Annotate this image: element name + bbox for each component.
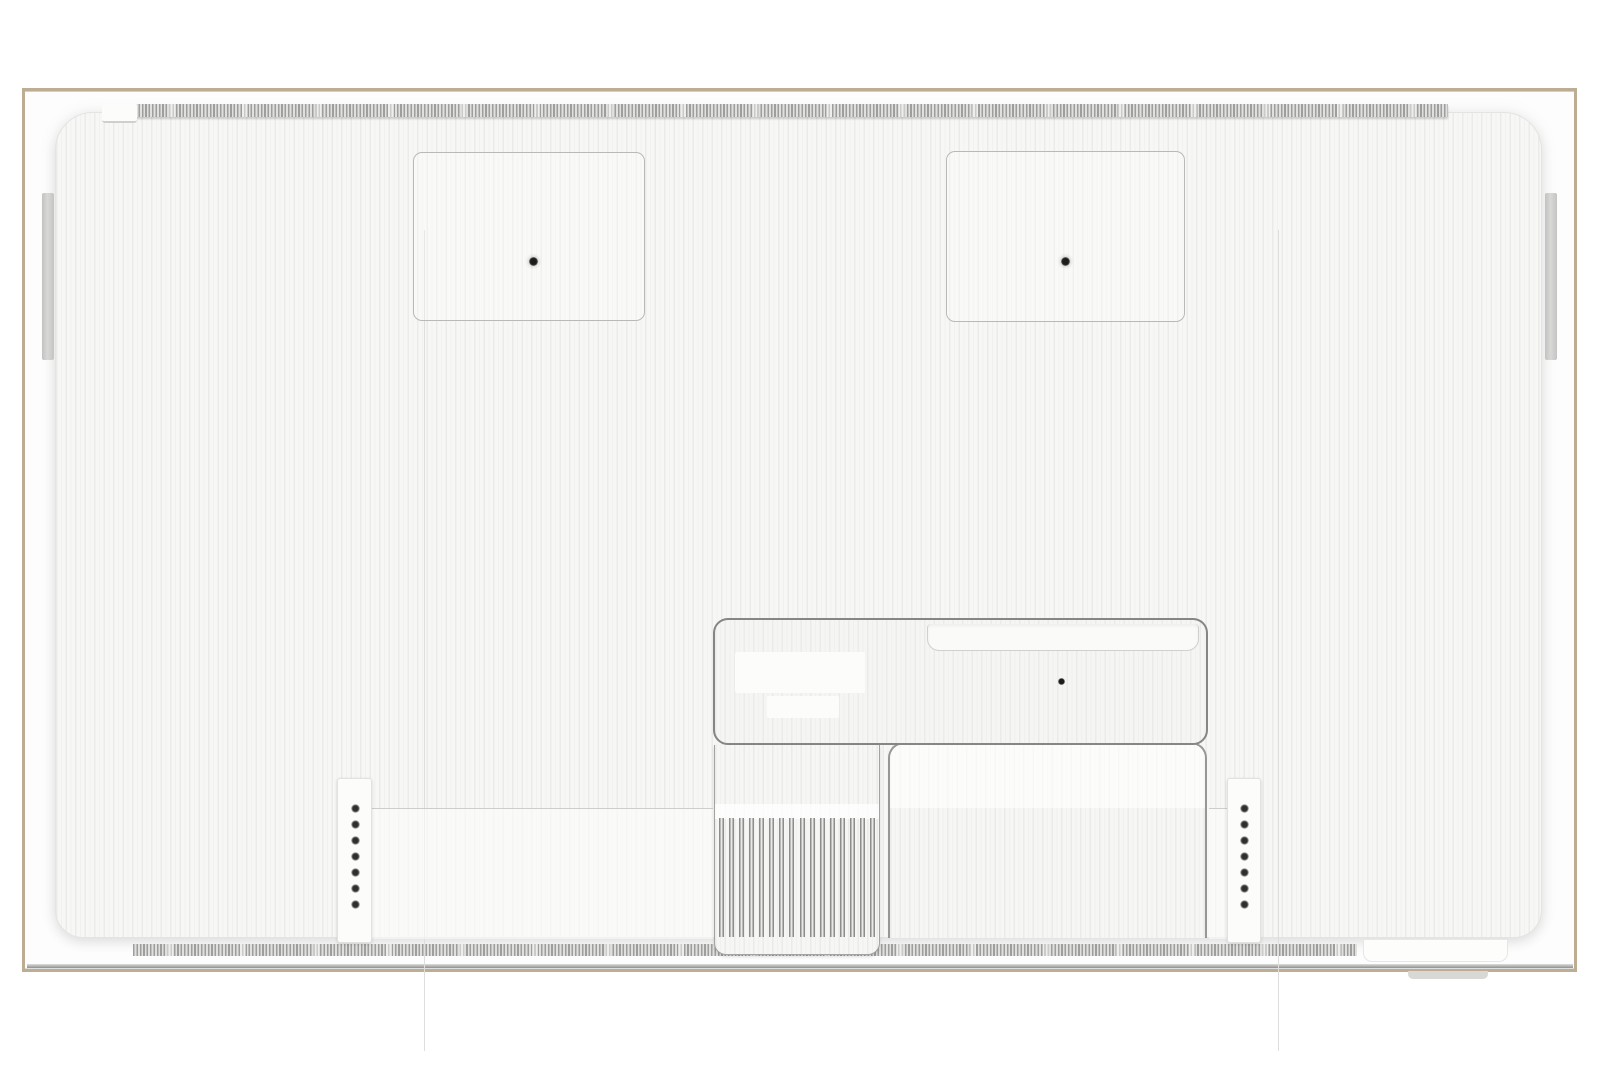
side-bracket-left — [42, 193, 54, 360]
lower-panel-section — [888, 742, 1207, 938]
vent-rib — [870, 818, 875, 937]
terminal-screw-hole — [1058, 678, 1065, 685]
screw-hole — [1240, 804, 1249, 813]
vent-rib — [810, 818, 815, 937]
screw-hole — [1240, 820, 1249, 829]
screw-hole — [1240, 852, 1249, 861]
top-ridge-strip — [135, 104, 1448, 117]
top-ridge-end-cap — [102, 103, 137, 123]
vent-rib — [850, 818, 855, 937]
screw-hole — [351, 868, 360, 877]
screw-hole-row — [351, 804, 360, 909]
terminal-label-small — [767, 696, 839, 718]
screw-hole-row — [1240, 804, 1249, 909]
vesa-screw-hole — [529, 257, 538, 266]
vent-column — [714, 745, 880, 955]
panel-seam-right — [1278, 230, 1279, 1051]
lower-panel-highlight — [890, 744, 1205, 808]
terminal-cover-box — [713, 618, 1208, 745]
vent-rib — [769, 818, 774, 937]
screw-strip-left — [337, 778, 372, 943]
screw-hole — [351, 900, 360, 909]
vent-rib — [820, 818, 825, 937]
screw-hole — [1240, 836, 1249, 845]
vesa-mount-recess-right — [946, 151, 1185, 322]
vent-rib — [729, 818, 734, 937]
vent-rib — [719, 818, 724, 937]
bottom-frame-foot-tab — [1408, 971, 1488, 979]
recessed-band-right — [1209, 808, 1227, 939]
vesa-mount-recess-left — [413, 152, 645, 321]
vent-rib — [789, 818, 794, 937]
vent-rib — [800, 818, 805, 937]
screw-hole — [351, 852, 360, 861]
side-bracket-right — [1545, 193, 1557, 360]
vent-column-highlight — [715, 804, 879, 819]
screw-hole — [1240, 900, 1249, 909]
vent-rib — [739, 818, 744, 937]
vent-rib — [840, 818, 845, 937]
frame-bottom-shadow-line — [27, 964, 1573, 968]
screw-hole — [351, 804, 360, 813]
vent-rib — [830, 818, 835, 937]
terminal-top-groove — [927, 624, 1199, 651]
screw-strip-right — [1227, 778, 1261, 943]
vesa-screw-hole — [1061, 257, 1070, 266]
screw-hole — [1240, 884, 1249, 893]
vent-rib — [779, 818, 784, 937]
tv-rear-product-photo — [0, 0, 1600, 1067]
screw-hole — [351, 820, 360, 829]
screw-hole — [351, 836, 360, 845]
vent-rib — [860, 818, 865, 937]
vent-rib — [759, 818, 764, 937]
bottom-right-cover-tab — [1363, 940, 1508, 962]
vent-rib — [749, 818, 754, 937]
recessed-band-left — [372, 808, 713, 939]
vent-rib-grille — [719, 818, 875, 937]
screw-hole — [351, 884, 360, 893]
terminal-label-area — [735, 652, 865, 693]
screw-hole — [1240, 868, 1249, 877]
